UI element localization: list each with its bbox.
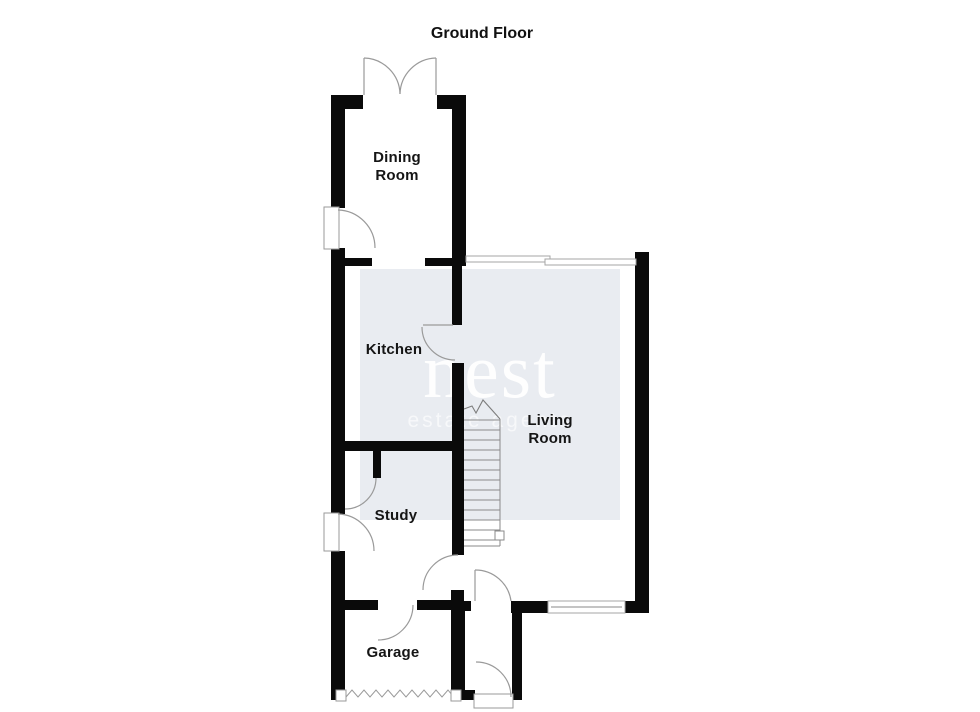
wall-garage-top-right (417, 600, 455, 610)
porch-door-arc (475, 570, 511, 601)
front-door-leaf (474, 694, 513, 708)
wall-garage-porch (451, 610, 465, 700)
wall-kitchen-living-lower (452, 363, 464, 555)
wall-study-stub (373, 451, 381, 478)
dining-side-door-arc (338, 210, 375, 248)
wall-porch-right (512, 601, 522, 700)
room-label-garage: Garage (333, 644, 453, 662)
wall-kitchen-living-upper (452, 258, 462, 325)
hall-door-arc (423, 555, 458, 590)
garage-door-post-right (451, 690, 461, 701)
page-title: Ground Floor (422, 25, 542, 43)
wall-porch-top (464, 601, 471, 611)
room-label-living: Living Room (490, 412, 610, 448)
wall-dining-kitchen-right (425, 258, 452, 266)
living-top-boundary-right (545, 259, 636, 265)
living-top-boundary-left (466, 256, 550, 262)
wall-left-middle (331, 248, 345, 514)
room-label-dining-line2: Room (337, 167, 457, 185)
floor-plan-drawing (0, 0, 980, 712)
stair-newel (495, 531, 504, 540)
wall-kitchen-study (345, 441, 462, 451)
room-label-dining: Dining Room (337, 149, 457, 185)
garage-door-arc (378, 605, 413, 640)
room-label-living-line1: Living (490, 412, 610, 430)
room-label-dining-line1: Dining (337, 149, 457, 167)
study-door-arc (345, 478, 376, 509)
garage-door-post-left (336, 690, 346, 701)
floor-plan-page: Ground Floor nest estate agents (0, 0, 980, 712)
room-label-kitchen: Kitchen (334, 341, 454, 359)
garage-opening (336, 690, 461, 701)
french-door-right-arc (400, 58, 436, 94)
front-door-arc (476, 662, 511, 697)
french-door-left-arc (364, 58, 400, 94)
wall-left-lower (331, 551, 345, 700)
wall-dining-kitchen-left (345, 258, 372, 266)
wall-living-right (635, 252, 649, 613)
room-label-living-line2: Room (490, 430, 610, 448)
wall-garage-top-left (345, 600, 378, 610)
room-label-study: Study (336, 507, 456, 525)
dining-side-door-leaf (324, 207, 339, 249)
garage-door-zigzag (346, 690, 452, 697)
